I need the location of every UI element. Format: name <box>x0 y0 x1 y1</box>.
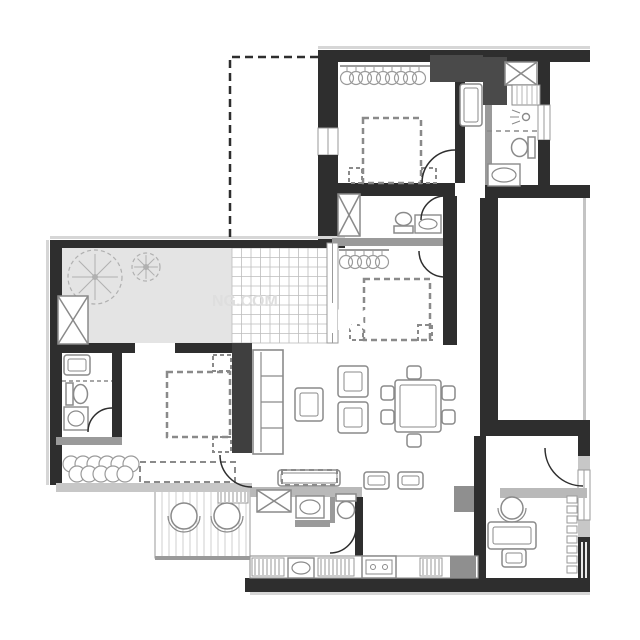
toilet-bath3 <box>336 494 356 519</box>
wardrobe-bed1 <box>340 66 430 85</box>
window-bed1-west <box>318 128 338 155</box>
dining-chair-1 <box>381 386 394 400</box>
wall-bed1-west-lower <box>318 155 338 243</box>
side-chair-b <box>398 472 423 489</box>
entry-cabinet <box>454 486 474 512</box>
wall-left <box>50 240 62 485</box>
shelf-bath1 <box>460 84 482 126</box>
kitchen-stove <box>362 556 396 578</box>
nightstand-master-a <box>349 168 362 183</box>
door-arc-entry <box>545 448 583 486</box>
bed-master <box>363 118 421 183</box>
door-arc-bath2 <box>88 408 112 432</box>
wall-bed1-west-upper <box>318 57 338 128</box>
edge-terrace-north <box>50 236 345 239</box>
sink-wc <box>415 215 441 233</box>
dining-table <box>395 380 441 432</box>
coffee-table <box>295 388 323 421</box>
bed-second <box>167 372 230 437</box>
watermark-faint: NG.COM <box>212 293 278 310</box>
shaft-bath1 <box>505 62 537 85</box>
closet-bath1 <box>483 57 507 105</box>
wall-entry-north <box>480 420 590 436</box>
door-arc-bath3 <box>330 527 356 553</box>
wardrobe-bed3 <box>339 250 389 269</box>
wall-terrace-north <box>50 240 345 248</box>
study-desk <box>488 522 536 549</box>
wall-bottom <box>245 578 590 592</box>
wall-bath3-south <box>295 520 330 527</box>
dining-chair-4 <box>442 410 455 424</box>
door-arc-bed1 <box>422 150 455 183</box>
planter-shrubs <box>63 456 139 482</box>
vanity-bath2 <box>64 407 88 430</box>
wall-bath3-partition <box>330 497 335 523</box>
floor-plan-page: NG.COMNG.COM <box>0 0 640 640</box>
toilet-bath2 <box>66 383 88 405</box>
shower-head-icon <box>510 110 530 124</box>
armchair-a <box>338 366 368 397</box>
wall-wc-south <box>332 238 443 246</box>
shaft-wc <box>338 194 360 236</box>
door-arc-bed3 <box>419 251 445 277</box>
watermark-bar <box>329 303 334 333</box>
shelf-bath2 <box>64 355 90 375</box>
wall-bath1-south <box>485 185 590 198</box>
closet-top <box>430 55 483 82</box>
wall-right-lower-cap <box>578 436 590 456</box>
study-curtain <box>567 496 577 573</box>
sofa <box>253 350 283 454</box>
study-chair <box>498 497 526 522</box>
wall-bath2-east <box>112 345 122 437</box>
parapet-right <box>583 198 586 420</box>
toilet-wc <box>394 213 413 234</box>
dining-chair-5 <box>407 366 421 379</box>
window-dark-slit-b <box>585 542 587 584</box>
svg-text:.COM: .COM <box>372 315 416 334</box>
boundary-dashed <box>230 57 318 243</box>
study-chair-small <box>502 549 526 567</box>
window-bath1-east <box>538 105 550 140</box>
sill-bed2-south <box>56 483 252 492</box>
wall-hall-east <box>480 198 498 428</box>
toilet-bath1 <box>512 137 536 158</box>
shaft-bath3 <box>257 490 291 512</box>
wall-hall-west <box>443 196 457 345</box>
kitchen-drawers-a <box>252 558 284 576</box>
shower-bath1 <box>512 85 540 105</box>
side-chair-a <box>364 472 389 489</box>
dining-chair-6 <box>407 434 421 447</box>
outer-edge-top <box>318 46 590 49</box>
kitchen-drawers-b <box>318 558 354 576</box>
wall-tv <box>232 343 252 453</box>
wall-bath2-south <box>56 437 122 445</box>
armchair-b <box>338 402 368 433</box>
outer-edge-left <box>46 240 49 485</box>
dining-chair-3 <box>442 386 455 400</box>
vanity-bath1 <box>488 164 520 186</box>
laundry-balcony-edge <box>155 556 250 560</box>
svg-text:NG.COM: NG.COM <box>212 293 278 310</box>
tv-bench <box>278 470 340 486</box>
nightstand-second-a <box>213 355 231 371</box>
sink-bath3 <box>296 496 324 518</box>
kitchen-fridge <box>450 556 476 578</box>
kitchen-drawers-c <box>420 558 442 576</box>
kitchen-sink <box>288 558 314 578</box>
window-dark-slit-a <box>581 542 583 584</box>
watermark-suffix: .COM <box>372 315 416 334</box>
laundry-step-mat <box>218 491 248 503</box>
nightstand-second-b <box>213 437 231 452</box>
outer-edge-bottom <box>250 592 590 595</box>
dining-chair-2 <box>381 410 394 424</box>
shaft-terrace <box>58 296 88 344</box>
